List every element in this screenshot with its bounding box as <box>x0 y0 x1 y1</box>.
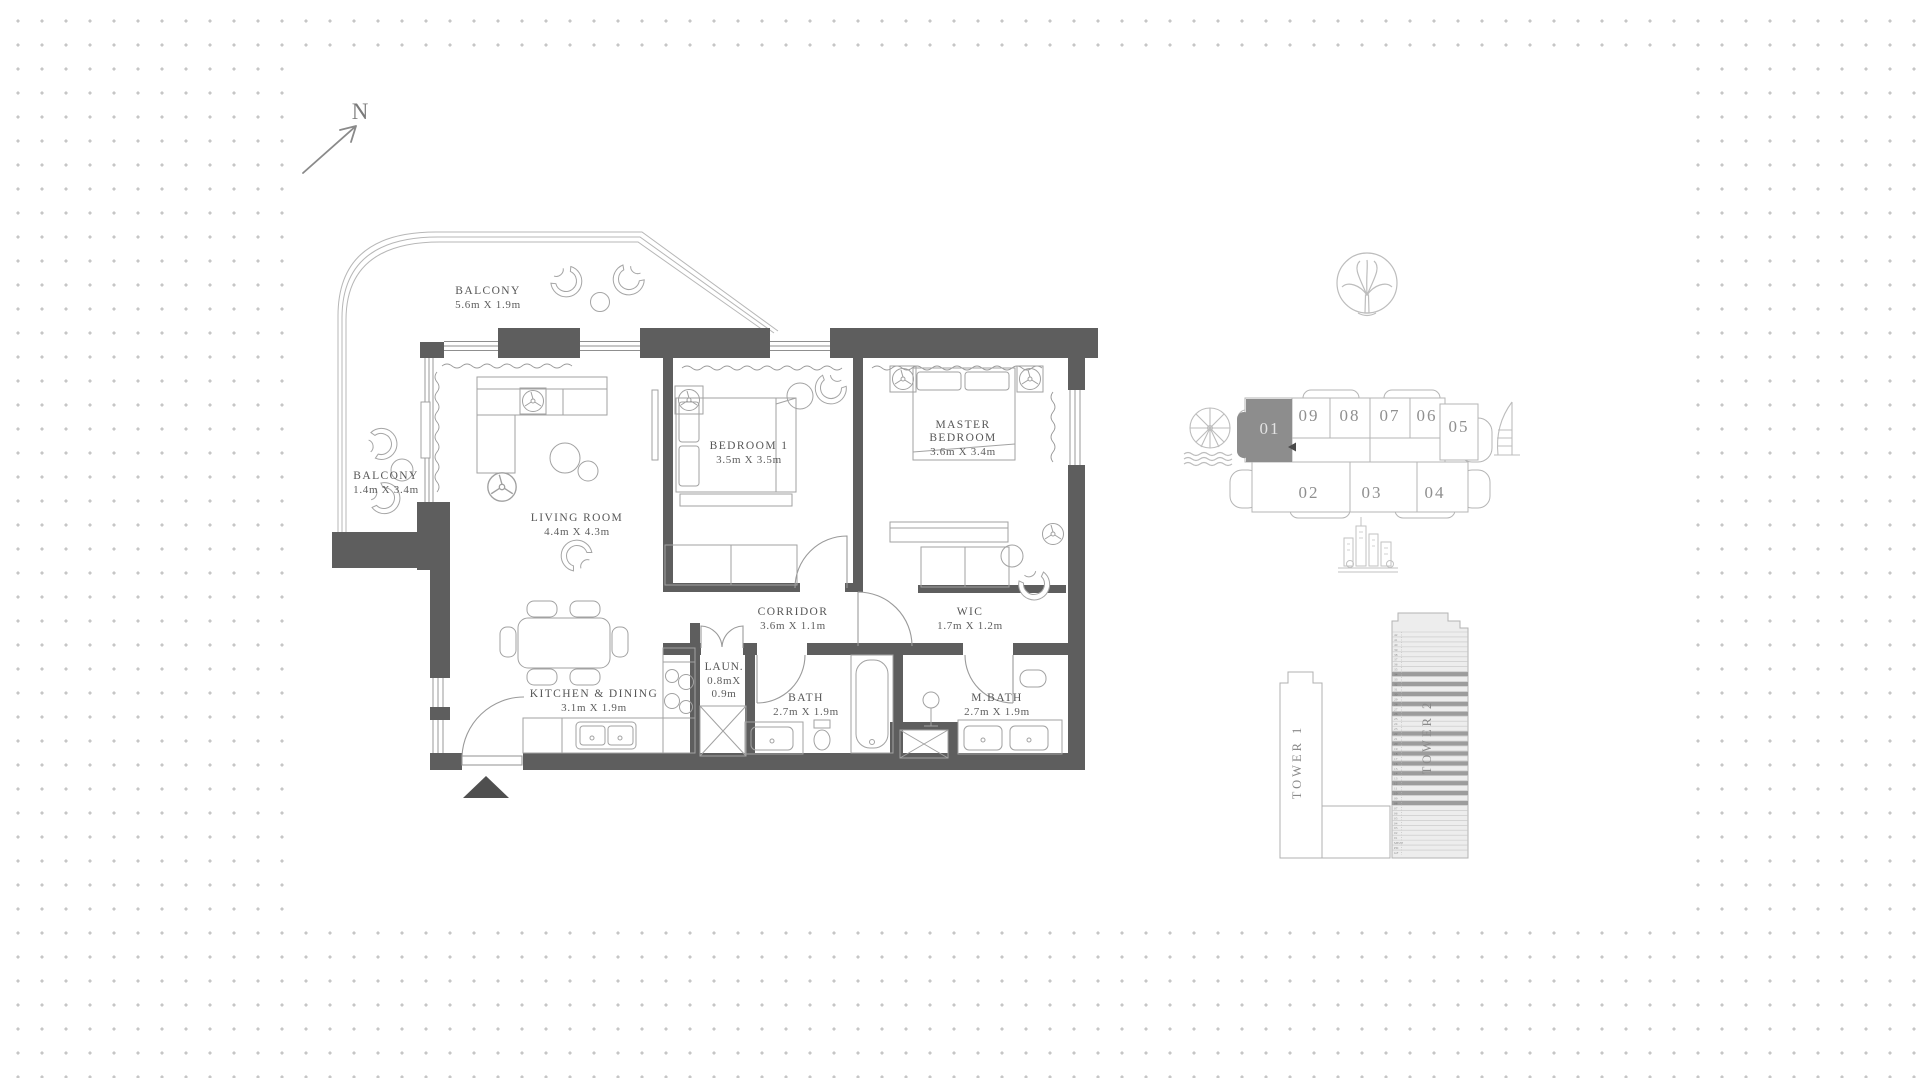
ferris-wheel-icon <box>1184 408 1232 466</box>
window-top-3 <box>770 342 830 351</box>
tower2-floor-label: 36 <box>1394 663 1398 667</box>
bench <box>680 494 792 506</box>
room-label-laundry: LAUN. 0.8mX 0.9m <box>701 661 747 701</box>
room-label-corridor: CORRIDOR 3.6m X 1.1m <box>758 606 829 633</box>
tower2-floor-highlight <box>1392 781 1468 785</box>
tower2-label: TOWER 2 <box>1420 700 1434 775</box>
tower2-floor-label: 23 <box>1394 727 1398 731</box>
ac-unit <box>520 388 546 414</box>
floorplan-page: { "compass": { "label": "N" }, "floor_pl… <box>0 0 1920 1078</box>
window-left-kitchen-2 <box>433 720 443 753</box>
entry-marker <box>463 776 509 798</box>
wic-wardrobe <box>921 547 1009 587</box>
bedside-table <box>787 383 813 409</box>
side-table <box>1001 545 1023 567</box>
tower2-floor-label: 40 <box>1394 643 1398 647</box>
tower2-floor-label: 34 <box>1394 673 1398 677</box>
north-arrow: N <box>303 99 369 173</box>
tower2-floor-label: 05 <box>1394 816 1398 820</box>
wardrobe <box>665 545 797 585</box>
tower2-floor-label: 30 <box>1394 692 1398 696</box>
palm-icon <box>1337 253 1397 316</box>
tower2-floor-label: 26 <box>1394 712 1398 716</box>
sailboat-icon <box>1494 402 1520 455</box>
north-label: N <box>352 99 369 124</box>
mbath-vanity <box>958 720 1062 754</box>
room-label-balcony-left: BALCONY 1.4m X 3.4m <box>353 470 419 497</box>
unit-label-06: 06 <box>1417 406 1438 425</box>
tower2-floor-label: 19 <box>1394 747 1398 751</box>
tower2-floor-highlight <box>1392 672 1468 676</box>
tower2-floor-label: 31 <box>1394 687 1398 691</box>
room-label-bedroom-1: BEDROOM 1 3.5m X 3.5m <box>710 440 789 467</box>
key-plan: 01 09 08 07 06 05 02 03 04 <box>1184 253 1520 572</box>
tower2-floor-label: 35 <box>1394 668 1398 672</box>
tower2-floor-label: 24 <box>1394 722 1398 726</box>
kitchen-dining <box>500 601 695 753</box>
tower2-floor-label: 14 <box>1394 772 1398 776</box>
tower2-floor-label: 38 <box>1394 653 1398 657</box>
tower2-floor-label: 33 <box>1394 678 1398 682</box>
tower2-floor-label: PD <box>1394 846 1399 850</box>
tower2-floor-label: MEZZ <box>1394 841 1403 845</box>
north-arrow-line <box>303 126 356 173</box>
unit-label-05: 05 <box>1449 417 1470 436</box>
tower2-floor-label: 17 <box>1394 757 1398 761</box>
tower2-floor-label: 16 <box>1394 762 1398 766</box>
window-left-kitchen-1 <box>433 678 443 707</box>
room-label-master-bath: M.BATH 2.7m X 1.9m <box>964 692 1030 719</box>
window-right-master <box>1070 390 1080 465</box>
room-label-wic: WIC 1.7m X 1.2m <box>937 606 1003 633</box>
dining-table <box>500 601 628 685</box>
laundry-doors <box>701 626 743 648</box>
tower2-floor-label: 41 <box>1394 638 1398 642</box>
window-top-1 <box>444 342 498 351</box>
tower2-floor-label: 37 <box>1394 658 1398 662</box>
unit-label-09: 09 <box>1299 406 1320 425</box>
tower2-floor-highlight <box>1392 801 1468 805</box>
unit-label-04: 04 <box>1425 483 1446 502</box>
unit-label-01: 01 <box>1260 419 1281 438</box>
unit-label-08: 08 <box>1340 406 1361 425</box>
tower2-floor-label: 15 <box>1394 767 1398 771</box>
stove <box>665 670 694 714</box>
living-room-furniture <box>477 377 658 575</box>
nightstand <box>890 366 916 392</box>
tower2-floor-label: 32 <box>1394 683 1398 687</box>
tower2-floor-highlight <box>1392 692 1468 696</box>
tower2-floor-label: 08 <box>1394 801 1398 805</box>
sofa <box>477 377 607 473</box>
tower2-floor-label: GF <box>1394 851 1398 855</box>
tower2-floor-label: 11 <box>1394 787 1398 791</box>
washer <box>700 706 746 756</box>
unit-label-02: 02 <box>1299 483 1320 502</box>
tower2-floor-highlight <box>1392 791 1468 795</box>
tower2-floor-label: 39 <box>1394 648 1398 652</box>
tower2-floor-label: 13 <box>1394 777 1398 781</box>
tower2-floor-label: 21 <box>1394 737 1398 741</box>
bedroom1-door <box>795 536 847 588</box>
window-top-2 <box>580 342 640 351</box>
tower2-floor-label: 18 <box>1394 752 1398 756</box>
tower2-floor-label: 01 <box>1394 836 1398 840</box>
bathtub <box>851 655 893 753</box>
mbath-basin <box>1020 670 1046 687</box>
tower2-floor-label: 22 <box>1394 732 1398 736</box>
dresser <box>890 522 1008 542</box>
tower2-floor-label: 09 <box>1394 796 1398 800</box>
bedroom1-furniture <box>665 371 850 585</box>
master-door <box>858 592 912 646</box>
tower2-floor-label: 02 <box>1394 831 1398 835</box>
tower2-floor-label: 28 <box>1394 702 1398 706</box>
unit-label-07: 07 <box>1380 406 1401 425</box>
room-label-living-room: LIVING ROOM 4.4m X 4.3m <box>531 512 623 539</box>
coffee-table <box>550 443 580 473</box>
master-bedroom-furniture <box>890 366 1064 604</box>
room-label-bath: BATH 2.7m X 1.9m <box>773 692 839 719</box>
unit-label-03: 03 <box>1362 483 1383 502</box>
tower2-floor-label: 20 <box>1394 742 1398 746</box>
floorplan-canvas: N <box>0 0 1920 1078</box>
balcony-door <box>421 402 430 458</box>
towers-diagram: 4241403938373635343332313029282726252423… <box>1280 613 1468 858</box>
city-skyline-icon <box>1338 517 1398 572</box>
nightstand <box>1017 366 1043 392</box>
tower2-floor-label: 12 <box>1394 782 1398 786</box>
tower2-floor-label: 06 <box>1394 811 1398 815</box>
tower1-label: TOWER 1 <box>1290 725 1304 800</box>
tv-unit <box>652 390 658 460</box>
mbath-toilet <box>923 692 939 726</box>
entry-door <box>462 697 524 765</box>
tower2-floor-label: 10 <box>1394 792 1398 796</box>
room-label-balcony-top: BALCONY 5.6m X 1.9m <box>455 285 521 312</box>
tower2-floor-highlight <box>1392 682 1468 686</box>
room-label-master-bedroom: MASTER BEDROOM 3.6m X 3.4m <box>919 419 1007 459</box>
side-table <box>578 461 598 481</box>
tower2-floor-label: 29 <box>1394 697 1398 701</box>
tower2-floor-label: 07 <box>1394 806 1398 810</box>
room-label-kitchen-dining: KITCHEN & DINING 3.1m X 1.9m <box>530 688 658 715</box>
tower2-floor-label: 03 <box>1394 826 1398 830</box>
bath-toilet <box>814 720 830 750</box>
tower2-floor-label: 42 <box>1394 633 1398 637</box>
tower2-floor-label: 04 <box>1394 821 1398 825</box>
tower2-floor-label: 27 <box>1394 707 1398 711</box>
tower2-floor-label: 25 <box>1394 717 1398 721</box>
